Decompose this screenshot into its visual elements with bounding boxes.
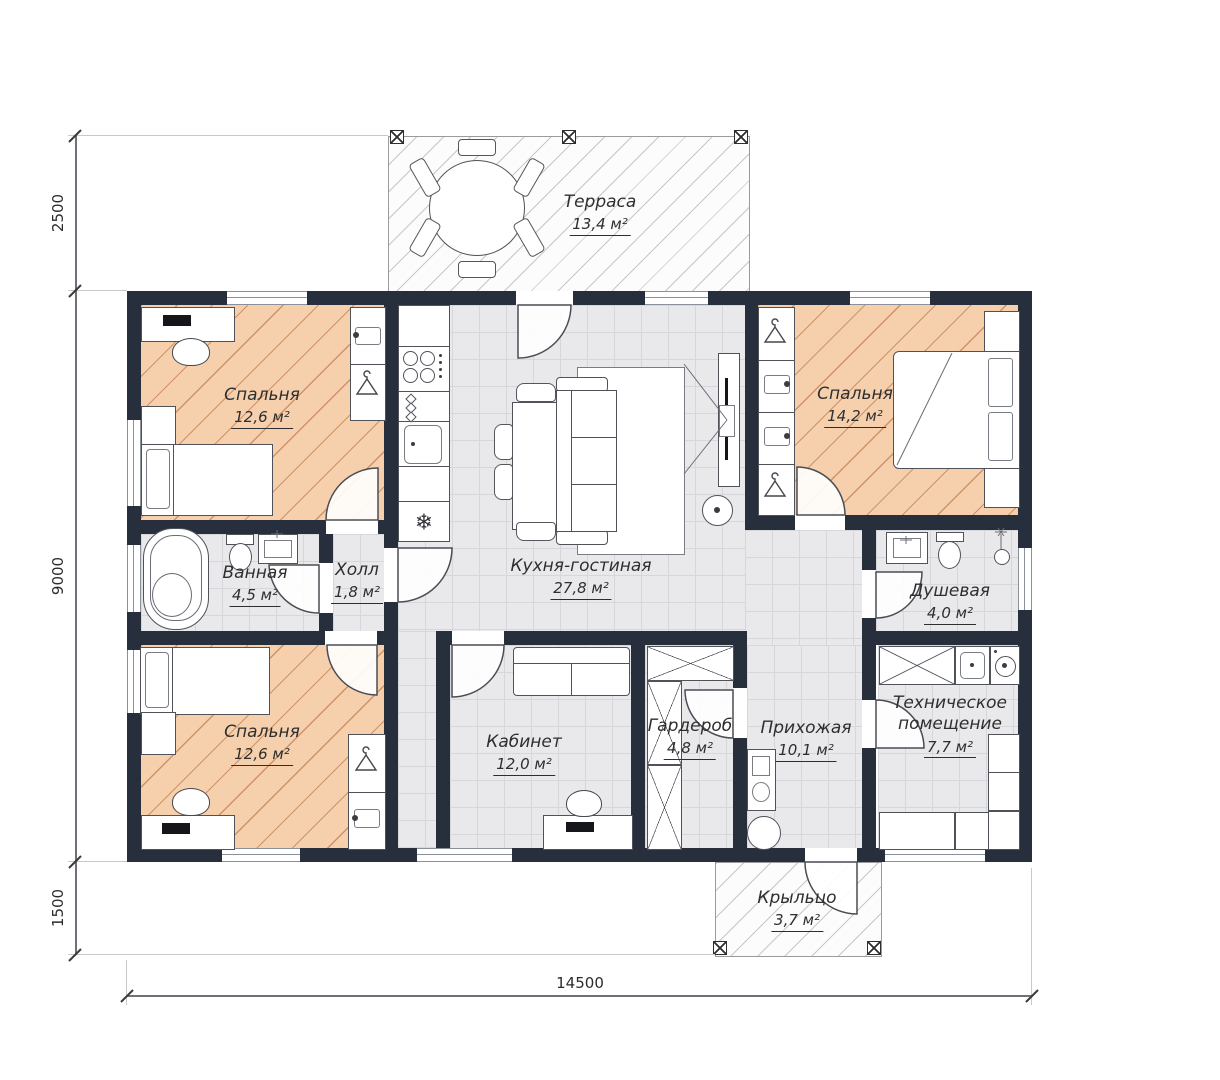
room-area: 10,1 м² (775, 739, 837, 761)
hanger-icon (353, 370, 381, 398)
washbasin-icon (258, 534, 298, 564)
wall (384, 631, 398, 862)
window (885, 848, 985, 862)
room-area: 7,7 м² (924, 736, 976, 758)
side-table-leg (714, 507, 720, 513)
cabinet-icon (879, 646, 955, 685)
room-area: 4,8 м² (664, 737, 716, 759)
washbasin-icon (886, 532, 928, 564)
wall (745, 515, 1032, 530)
door-opening (325, 631, 377, 645)
room-name: Спальня (224, 385, 300, 406)
room-area: 3,7 м² (771, 909, 823, 931)
chair-icon (458, 139, 496, 156)
sofa-icon (571, 390, 617, 532)
column-marker (713, 941, 727, 955)
room-name: Кухня-гостиная (510, 556, 651, 577)
room-name: Спальня (224, 722, 300, 743)
window (227, 291, 307, 305)
window (127, 545, 141, 612)
window (1018, 548, 1032, 610)
dimension-house-width: 14500 (556, 974, 604, 992)
dimension-porch-depth: 1500 (49, 889, 67, 927)
room-name: Кабинет (486, 732, 562, 753)
terrace-table-icon (429, 160, 525, 256)
hanger-icon (761, 318, 789, 346)
monitor-icon (163, 315, 191, 326)
kitchen-corridor-floor (745, 530, 862, 645)
room-label-wardrobe: Гардероб 4,8 м² (648, 716, 733, 760)
column-marker (867, 941, 881, 955)
desk-chair-icon (172, 788, 210, 816)
nightstand-icon (984, 311, 1020, 352)
dimension-line-bottom (127, 995, 1032, 997)
monitor-icon (162, 823, 190, 834)
desk-chair-icon (566, 790, 602, 817)
window (417, 848, 512, 862)
window (645, 291, 708, 305)
extension-line (68, 954, 715, 955)
kitchen-counter-icon: ❄ (398, 305, 450, 542)
chair-icon (516, 383, 556, 402)
hanger-icon (761, 472, 789, 500)
nightstand-icon (141, 712, 176, 755)
column-marker (390, 130, 404, 144)
door-opening (862, 570, 876, 618)
room-area: 27,8 м² (550, 577, 612, 599)
cabinet-icon (879, 812, 955, 850)
door-opening (384, 548, 398, 602)
room-area: 1,8 м² (331, 581, 383, 603)
room-label-porch: Крыльцо 3,7 м² (757, 888, 836, 932)
room-label-entry: Прихожая 10,1 м² (760, 718, 851, 762)
room-label-kitchen-living: Кухня-гостиная 27,8 м² (510, 556, 651, 600)
double-bed-icon (893, 351, 1020, 469)
washing-machine-icon (990, 646, 1020, 685)
room-area: 12,6 м² (231, 406, 293, 428)
room-area: 14,2 м² (824, 405, 886, 427)
column-marker (562, 130, 576, 144)
pouf-icon (747, 816, 781, 850)
chair-icon (458, 261, 496, 278)
wall (862, 631, 1032, 645)
room-label-bedroom-bl: Спальня 12,6 м² (224, 722, 300, 766)
office-sofa-icon (513, 647, 630, 696)
desk-chair-icon (172, 338, 210, 366)
hanger-icon (352, 746, 380, 774)
extension-line (1031, 868, 1032, 1005)
dimension-house-depth: 9000 (49, 557, 67, 595)
wall (645, 631, 747, 645)
room-label-tech: Техническое помещение 7,7 м² (875, 693, 1025, 758)
nightstand-icon (984, 467, 1020, 508)
wardrobe-cabinet-icon (350, 307, 386, 421)
chair-icon (494, 464, 513, 500)
room-name: Прихожая (760, 718, 851, 739)
room-name: Спальня (817, 384, 893, 405)
room-label-office: Кабинет 12,0 м² (486, 732, 562, 776)
room-name: Холл (331, 560, 383, 581)
wall (733, 631, 747, 862)
wall (745, 305, 758, 530)
door-opening (733, 688, 747, 738)
room-name: Гардероб (648, 716, 733, 737)
room-label-hall: Холл 1,8 м² (331, 560, 383, 604)
chair-icon (516, 522, 556, 541)
room-area: 4,5 м² (229, 584, 281, 606)
dimension-line-left (75, 136, 77, 955)
room-label-bathroom: Ванная 4,5 м² (223, 563, 288, 607)
tv-mount-icon (719, 405, 735, 437)
wall (631, 631, 645, 862)
room-area: 12,6 м² (231, 743, 293, 765)
toilet-bowl-icon (938, 541, 961, 569)
room-name: Душевая (910, 581, 990, 602)
room-area: 12,0 м² (493, 753, 555, 775)
room-label-bedroom-tr: Спальня 14,2 м² (817, 384, 893, 428)
room-name: Техническое помещение (875, 693, 1025, 736)
window (127, 650, 141, 713)
door-opening (805, 848, 857, 862)
shower-head-icon (994, 549, 1010, 565)
room-name: Крыльцо (757, 888, 836, 909)
shelving-icon (988, 811, 1020, 850)
room-area: 13,4 м² (569, 213, 631, 235)
door-opening (795, 515, 845, 530)
room-area: 4,0 м² (924, 602, 976, 624)
room-name: Терраса (564, 192, 637, 213)
wardrobe-cabinet-icon (647, 646, 734, 681)
desk-icon (543, 815, 633, 850)
door-opening (326, 520, 378, 534)
wardrobe-cabinet-icon (647, 765, 682, 850)
hall-strip-floor (398, 631, 436, 848)
sink-icon (955, 646, 990, 685)
room-label-bedroom-tl: Спальня 12,6 м² (224, 385, 300, 429)
column-marker (734, 130, 748, 144)
window (222, 848, 300, 862)
chair-icon (494, 424, 513, 460)
room-label-terrace: Терраса 13,4 м² (564, 192, 637, 236)
extension-line (68, 135, 388, 136)
floor-plan: ❄ (0, 0, 1220, 1080)
room-name: Ванная (223, 563, 288, 584)
bed-icon (140, 647, 270, 715)
cabinet-icon (955, 812, 989, 850)
window (850, 291, 930, 305)
bed-icon (141, 444, 273, 516)
monitor-icon (566, 822, 594, 832)
fridge-icon: ❄ (415, 511, 433, 536)
dimension-terrace-depth: 2500 (49, 194, 67, 232)
door-opening (516, 291, 573, 305)
door-opening (862, 700, 876, 748)
room-label-shower: Душевая 4,0 м² (910, 581, 990, 625)
wall (436, 631, 450, 862)
door-opening (452, 631, 504, 645)
window (127, 420, 141, 506)
sofa-armrest-icon (556, 530, 608, 545)
nightstand-icon (141, 406, 176, 448)
bathtub-icon (143, 528, 209, 630)
